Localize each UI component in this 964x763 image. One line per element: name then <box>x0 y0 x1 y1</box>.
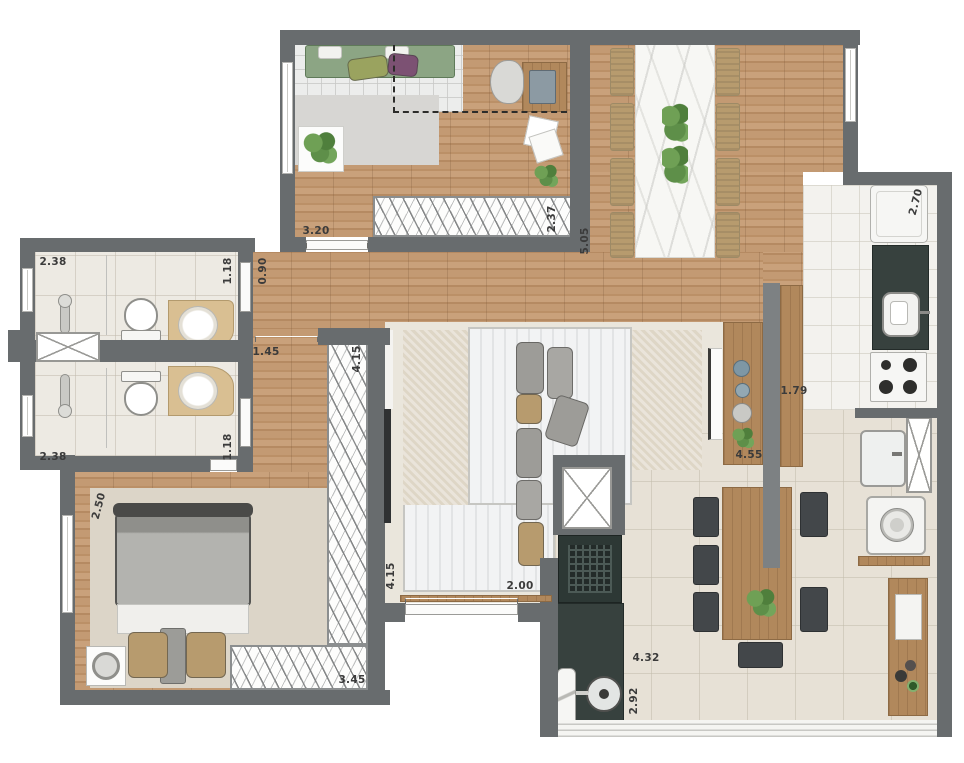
buffet-bottle-3 <box>907 680 919 692</box>
wall-office-bottom-left <box>280 237 306 252</box>
cooktop-icon <box>870 352 927 402</box>
kitchen-sink-basin <box>890 301 908 325</box>
wall-office-bottom-right <box>368 237 570 252</box>
centerpiece-plant-icon-2 <box>662 142 688 188</box>
outdoor-chair-icon <box>738 642 783 668</box>
bed-bench-pillow-left <box>128 632 168 678</box>
sofa-headrest-left <box>318 46 342 59</box>
buffet-bottle-2 <box>905 660 916 671</box>
fridge-inner-line <box>876 191 922 237</box>
burner-1 <box>881 360 891 370</box>
wall-terrace-left <box>540 558 558 737</box>
living-right-rug <box>632 330 702 470</box>
window-dining <box>845 48 856 122</box>
floor-plan: 3.202.375.052.701.180.902.381.452.381.18… <box>0 0 964 763</box>
toilet-icon <box>124 298 158 332</box>
shower-glass-1 <box>106 255 107 335</box>
dim-bracket-145 <box>255 336 318 342</box>
purple-cushion <box>387 52 419 77</box>
window-bath-1 <box>22 268 33 312</box>
shower-mixer-knob <box>58 294 72 308</box>
tank-faucet <box>892 452 902 456</box>
kitchen-faucet <box>918 311 930 314</box>
service-shaft-icon <box>906 417 932 493</box>
wall-closet-right <box>368 343 385 705</box>
wall-step-right <box>843 172 950 185</box>
wall-living-bottom-left <box>370 603 405 622</box>
buffet-tray <box>895 594 922 640</box>
laptop-icon <box>529 70 556 104</box>
outdoor-chair-icon <box>800 492 828 537</box>
outdoor-chair-icon <box>693 545 719 585</box>
living-left-rug <box>403 330 468 505</box>
outdoor-chair-icon <box>693 497 719 537</box>
half-wall-divider <box>763 283 780 568</box>
washer-drum <box>880 508 914 542</box>
dining-chair-icon <box>610 103 634 151</box>
laundry-tank-icon <box>860 430 906 487</box>
dim-bracket-200 <box>405 598 518 604</box>
dining-chair-icon <box>716 158 740 206</box>
burner-2 <box>903 358 917 372</box>
grill-grate <box>568 545 612 593</box>
bedroom-closet-hatch <box>230 645 368 690</box>
corridor-floor <box>253 328 327 472</box>
outdoor-chair-icon <box>693 592 719 632</box>
wall-bath-top <box>20 238 255 252</box>
wall-bedroom-bottom <box>60 690 390 705</box>
buffet-bottle-1 <box>895 670 907 682</box>
console-plate-1 <box>733 360 750 377</box>
wall-outer-right <box>937 172 952 737</box>
living-tv-panel-icon <box>384 409 391 523</box>
coffee-table-plants <box>303 131 337 165</box>
bed-headboard <box>113 503 253 517</box>
burner-4 <box>903 380 917 394</box>
layout-dashed-line-v <box>393 45 395 113</box>
window-office <box>282 62 293 174</box>
wall-top <box>280 30 860 45</box>
corridor-closet-hatch <box>327 343 368 645</box>
toilet-tank <box>121 371 161 382</box>
bed-bench-pillow-right <box>186 632 226 678</box>
hall-floor <box>253 252 763 328</box>
office-wardrobe-hatch <box>373 196 588 237</box>
sink-faucet <box>576 691 588 695</box>
wall-laundry <box>855 408 937 418</box>
laundry-shelf <box>858 556 930 566</box>
tv-panel-icon <box>708 348 722 440</box>
dining-chair-icon <box>716 103 740 151</box>
shower-mixer-knob <box>58 404 72 418</box>
sofa-cushion-5 <box>516 428 542 478</box>
wall-office-right <box>570 45 590 252</box>
window-bath-2 <box>22 395 33 437</box>
centerpiece-plant-icon <box>662 100 688 146</box>
sofa-cushion-1 <box>516 342 544 394</box>
dining-chair-icon <box>610 158 634 206</box>
sliding-door-living <box>405 604 518 615</box>
round-sink-drain <box>599 689 609 699</box>
outdoor-table-plant <box>746 588 776 618</box>
sofa-cushion-2 <box>547 347 573 399</box>
toilet-icon <box>124 382 158 416</box>
window-bedroom <box>62 515 73 613</box>
office-chair-icon <box>490 60 524 104</box>
dim-bracket-320 <box>306 242 368 248</box>
burner-3 <box>879 380 893 394</box>
door-bathroom-2 <box>240 398 251 447</box>
office-plant <box>534 164 558 188</box>
wall-exterior-fin <box>8 330 20 362</box>
door-bathroom-1 <box>240 262 251 312</box>
drying-board <box>557 668 576 726</box>
door-bedroom <box>210 459 237 471</box>
outdoor-chair-icon <box>800 587 828 632</box>
console-plant <box>732 427 754 449</box>
console-bowl <box>732 403 752 423</box>
pantry-cabinet-icon <box>780 285 803 467</box>
terrace-glass-band <box>558 720 937 737</box>
console-plate-2 <box>735 383 750 398</box>
layout-dashed-line-h <box>393 111 567 113</box>
wall-bedroom-top <box>60 458 210 472</box>
shower-glass-2 <box>106 368 107 448</box>
vanity-sink-icon <box>178 372 218 410</box>
terrace-shaft-icon <box>562 467 612 529</box>
dining-chair-icon <box>716 212 740 258</box>
sofa-cushion-6 <box>516 480 542 520</box>
bathroom-shaft-icon <box>36 332 100 362</box>
nightstand-decor <box>92 652 120 680</box>
wall-bedroom-stub <box>237 458 253 472</box>
double-bed-icon <box>115 514 251 606</box>
dining-chair-icon <box>716 48 740 96</box>
dining-chair-icon <box>610 48 634 96</box>
vanity-sink-icon <box>178 306 218 344</box>
dining-chair-icon <box>610 212 634 258</box>
sofa-cushion-4 <box>516 394 542 424</box>
